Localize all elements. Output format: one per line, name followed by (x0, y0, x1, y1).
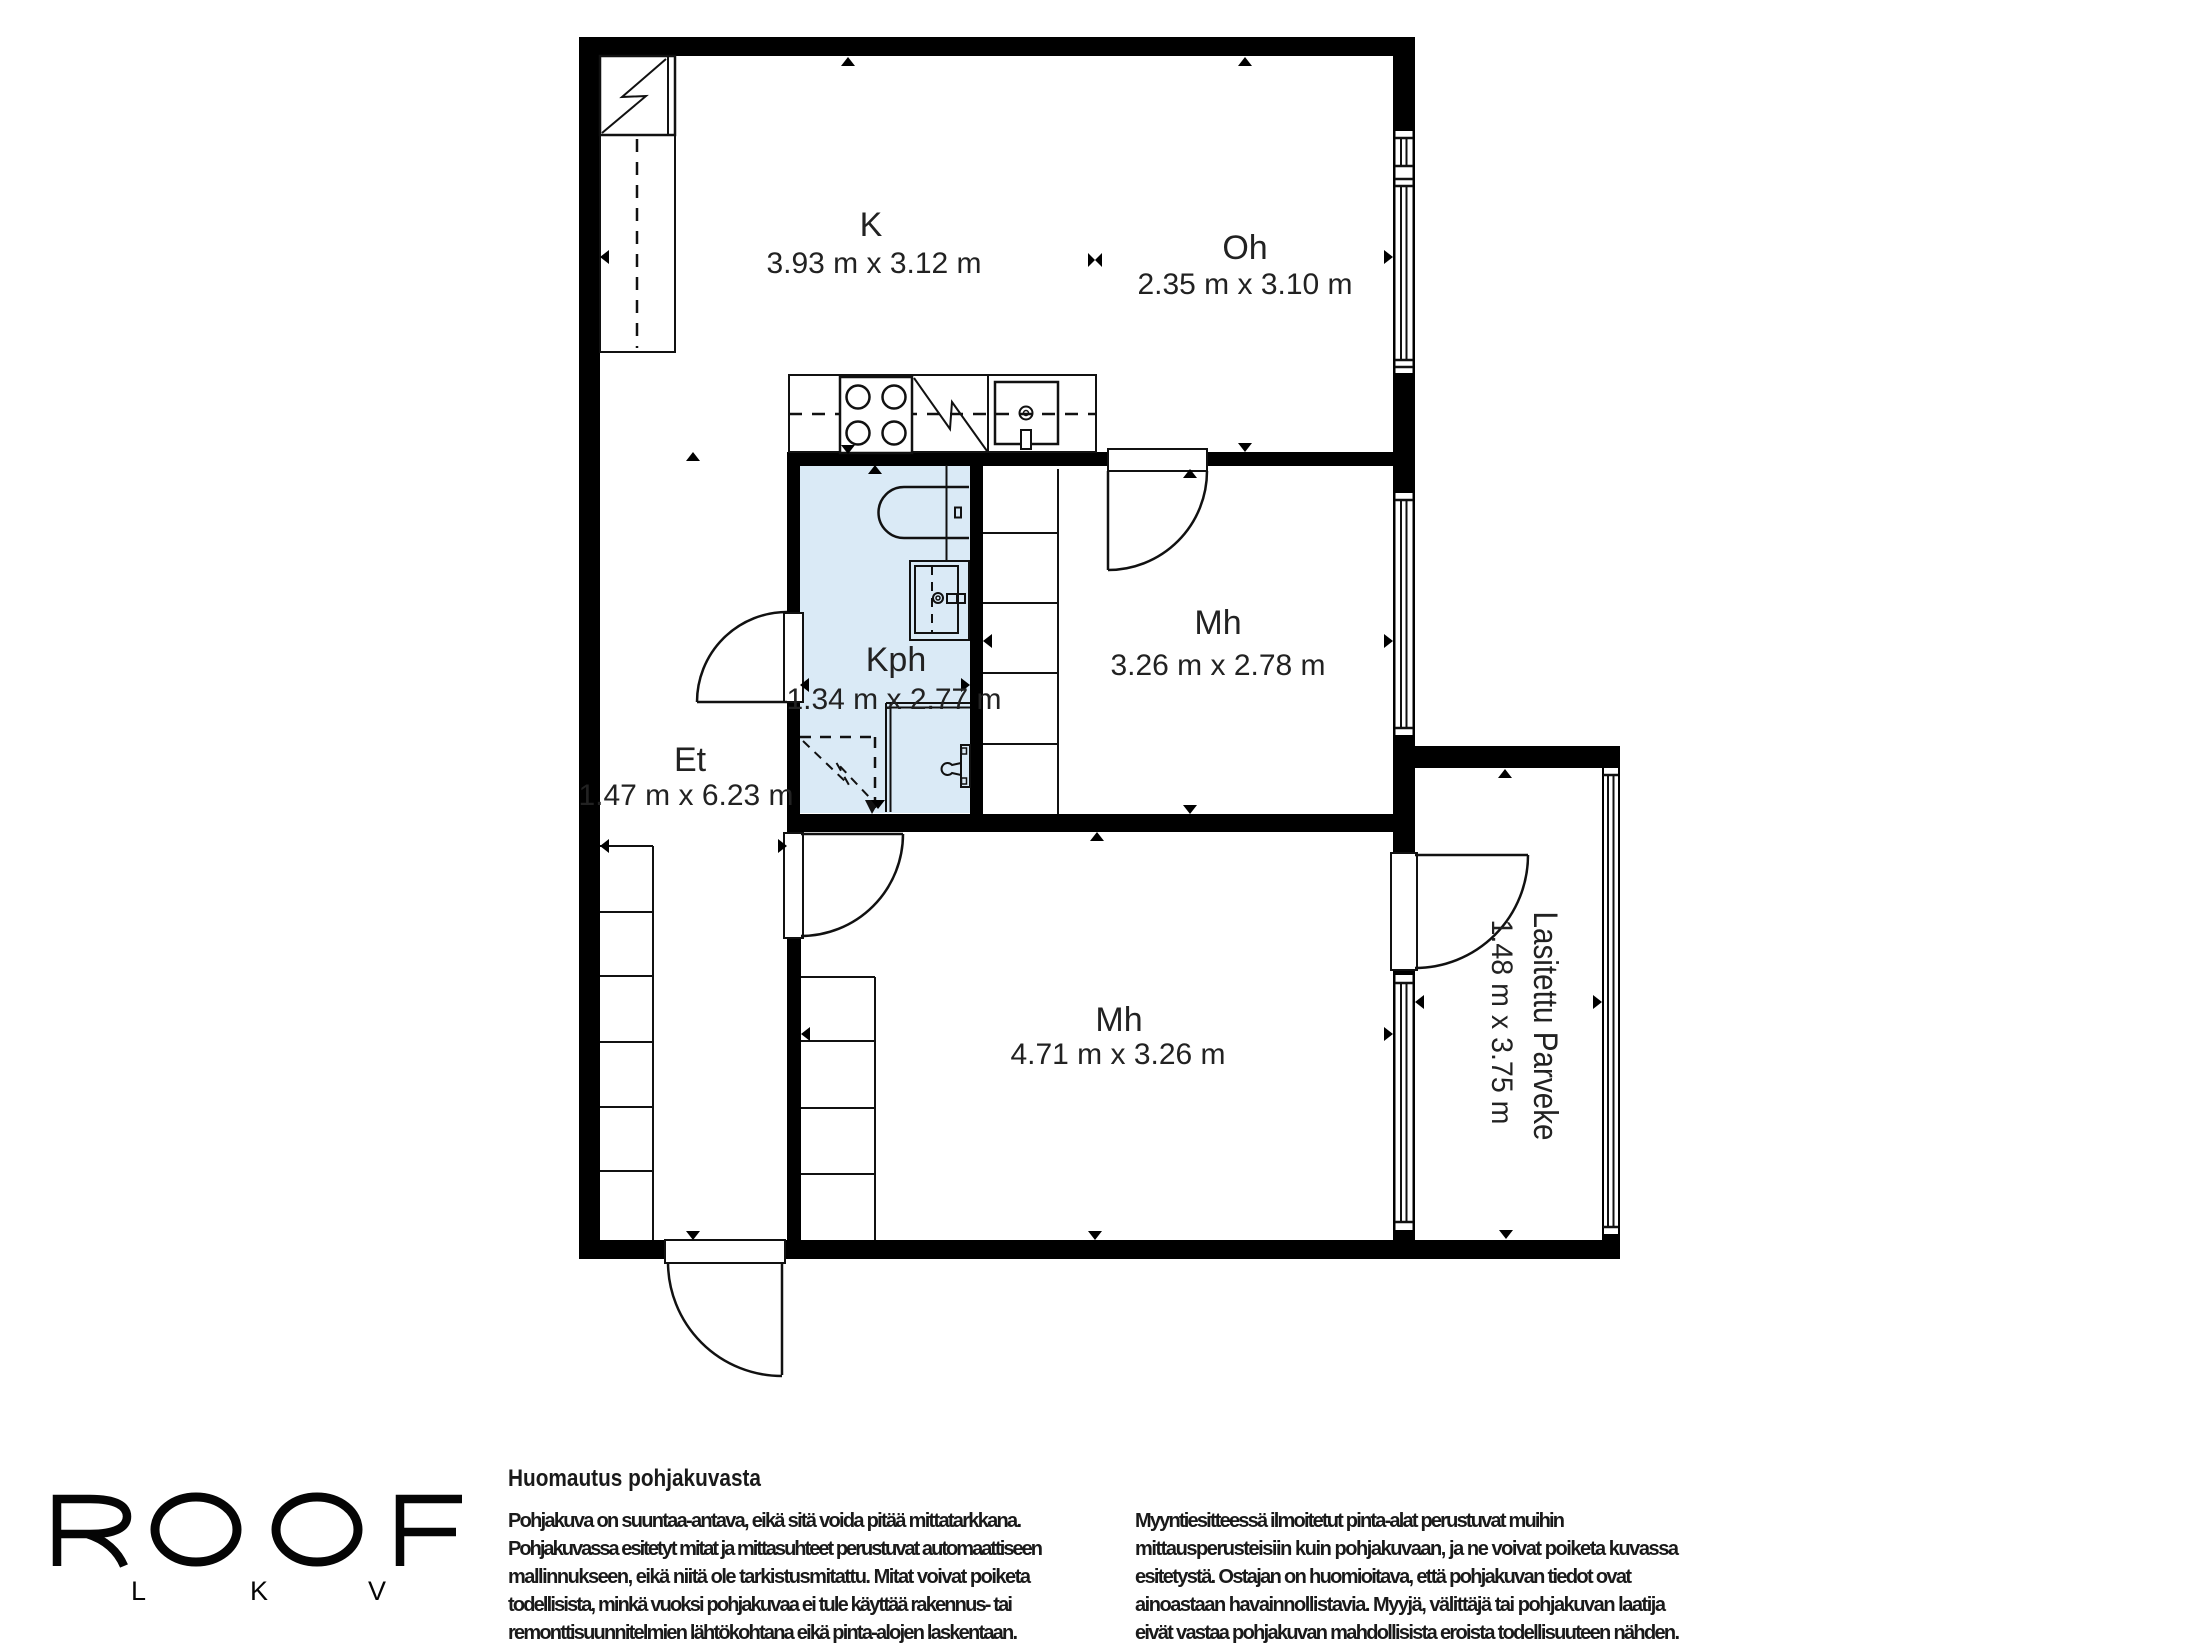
svg-text:L: L (131, 1576, 146, 1606)
svg-text:esitetystä. Ostajan on huomioi: esitetystä. Ostajan on huomioitava, että… (1135, 1566, 1632, 1588)
svg-text:Oh: Oh (1222, 229, 1267, 267)
svg-text:1.34 m x 2.77 m: 1.34 m x 2.77 m (786, 683, 1001, 716)
svg-text:Kph: Kph (866, 641, 927, 679)
svg-text:mittausperusteisiin kuin pohja: mittausperusteisiin kuin pohjakuvaan, ja… (1135, 1538, 1680, 1560)
svg-text:Huomautus pohjakuvasta: Huomautus pohjakuvasta (508, 1465, 762, 1492)
svg-text:Pohjakuva on suuntaa-antava, e: Pohjakuva on suuntaa-antava, eikä sitä v… (508, 1510, 1022, 1532)
svg-text:remonttisuunnitelmien lähtökoh: remonttisuunnitelmien lähtökohtana eikä … (508, 1622, 1018, 1644)
svg-text:Myyntiesitteessä ilmoitetut pi: Myyntiesitteessä ilmoitetut pinta-alat p… (1135, 1510, 1565, 1532)
svg-text:eivät vastaa pohjakuvan mahdol: eivät vastaa pohjakuvan mahdollisista er… (1135, 1622, 1680, 1644)
svg-text:K: K (860, 206, 883, 244)
svg-text:2.35 m x 3.10 m: 2.35 m x 3.10 m (1137, 268, 1352, 301)
svg-text:1.47 m x 6.23 m: 1.47 m x 6.23 m (578, 779, 793, 812)
svg-text:V: V (368, 1576, 386, 1606)
svg-text:mallinnukseen, eikä niitä ole: mallinnukseen, eikä niitä ole tarkistusm… (508, 1566, 1032, 1588)
svg-text:todellisista, minkä vuoksi poh: todellisista, minkä vuoksi pohjakuvaa ei… (508, 1594, 1013, 1616)
svg-text:Et: Et (674, 741, 707, 779)
svg-text:4.71 m x 3.26 m: 4.71 m x 3.26 m (1010, 1038, 1225, 1071)
svg-text:Pohjakuvassa esitetyt mitat ja: Pohjakuvassa esitetyt mitat ja mittasuht… (508, 1538, 1043, 1560)
svg-text:Lasitettu Parveke: Lasitettu Parveke (1526, 912, 1564, 1141)
svg-text:3.93 m x 3.12 m: 3.93 m x 3.12 m (766, 247, 981, 280)
svg-text:K: K (250, 1576, 268, 1606)
svg-text:1.48 m x 3.75 m: 1.48 m x 3.75 m (1485, 920, 1518, 1125)
svg-text:ainoastaan havainnollistavia.: ainoastaan havainnollistavia. Myyjä, väl… (1135, 1594, 1667, 1616)
svg-text:Mh: Mh (1095, 1001, 1142, 1039)
svg-text:Mh: Mh (1194, 604, 1241, 642)
svg-text:3.26 m x 2.78 m: 3.26 m x 2.78 m (1110, 649, 1325, 682)
